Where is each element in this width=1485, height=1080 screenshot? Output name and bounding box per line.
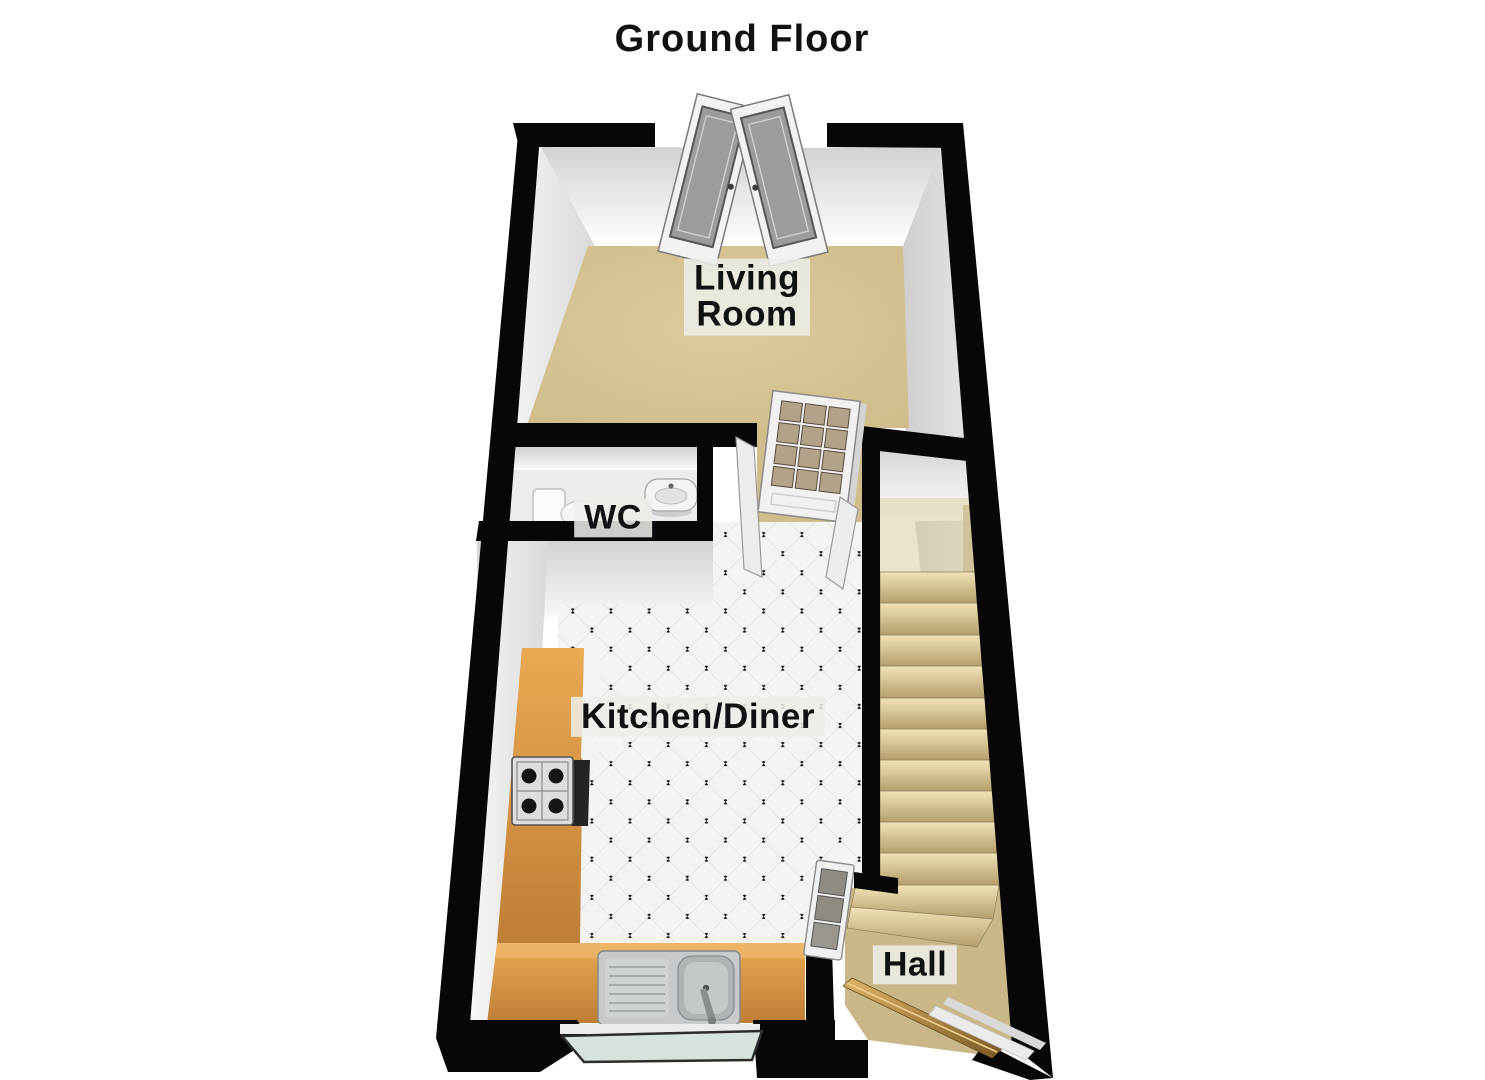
hall-label: Hall — [873, 945, 957, 984]
floorplan-drawing — [0, 0, 1485, 1080]
window — [560, 1024, 762, 1062]
kitchen-diner-label: Kitchen/Diner — [571, 697, 825, 737]
page-title: Ground Floor — [605, 18, 880, 62]
living-room-label: Living Room — [684, 259, 810, 336]
wc-label: WC — [574, 498, 652, 537]
sink-with-drainer — [598, 951, 740, 1025]
floorplan-image: Ground Floor Living Room WC Kitchen/Dine… — [0, 0, 1485, 1080]
gas-hob — [512, 757, 573, 825]
oven — [571, 760, 590, 826]
wash-basin — [645, 479, 697, 517]
glazed-internal-door — [758, 391, 867, 524]
